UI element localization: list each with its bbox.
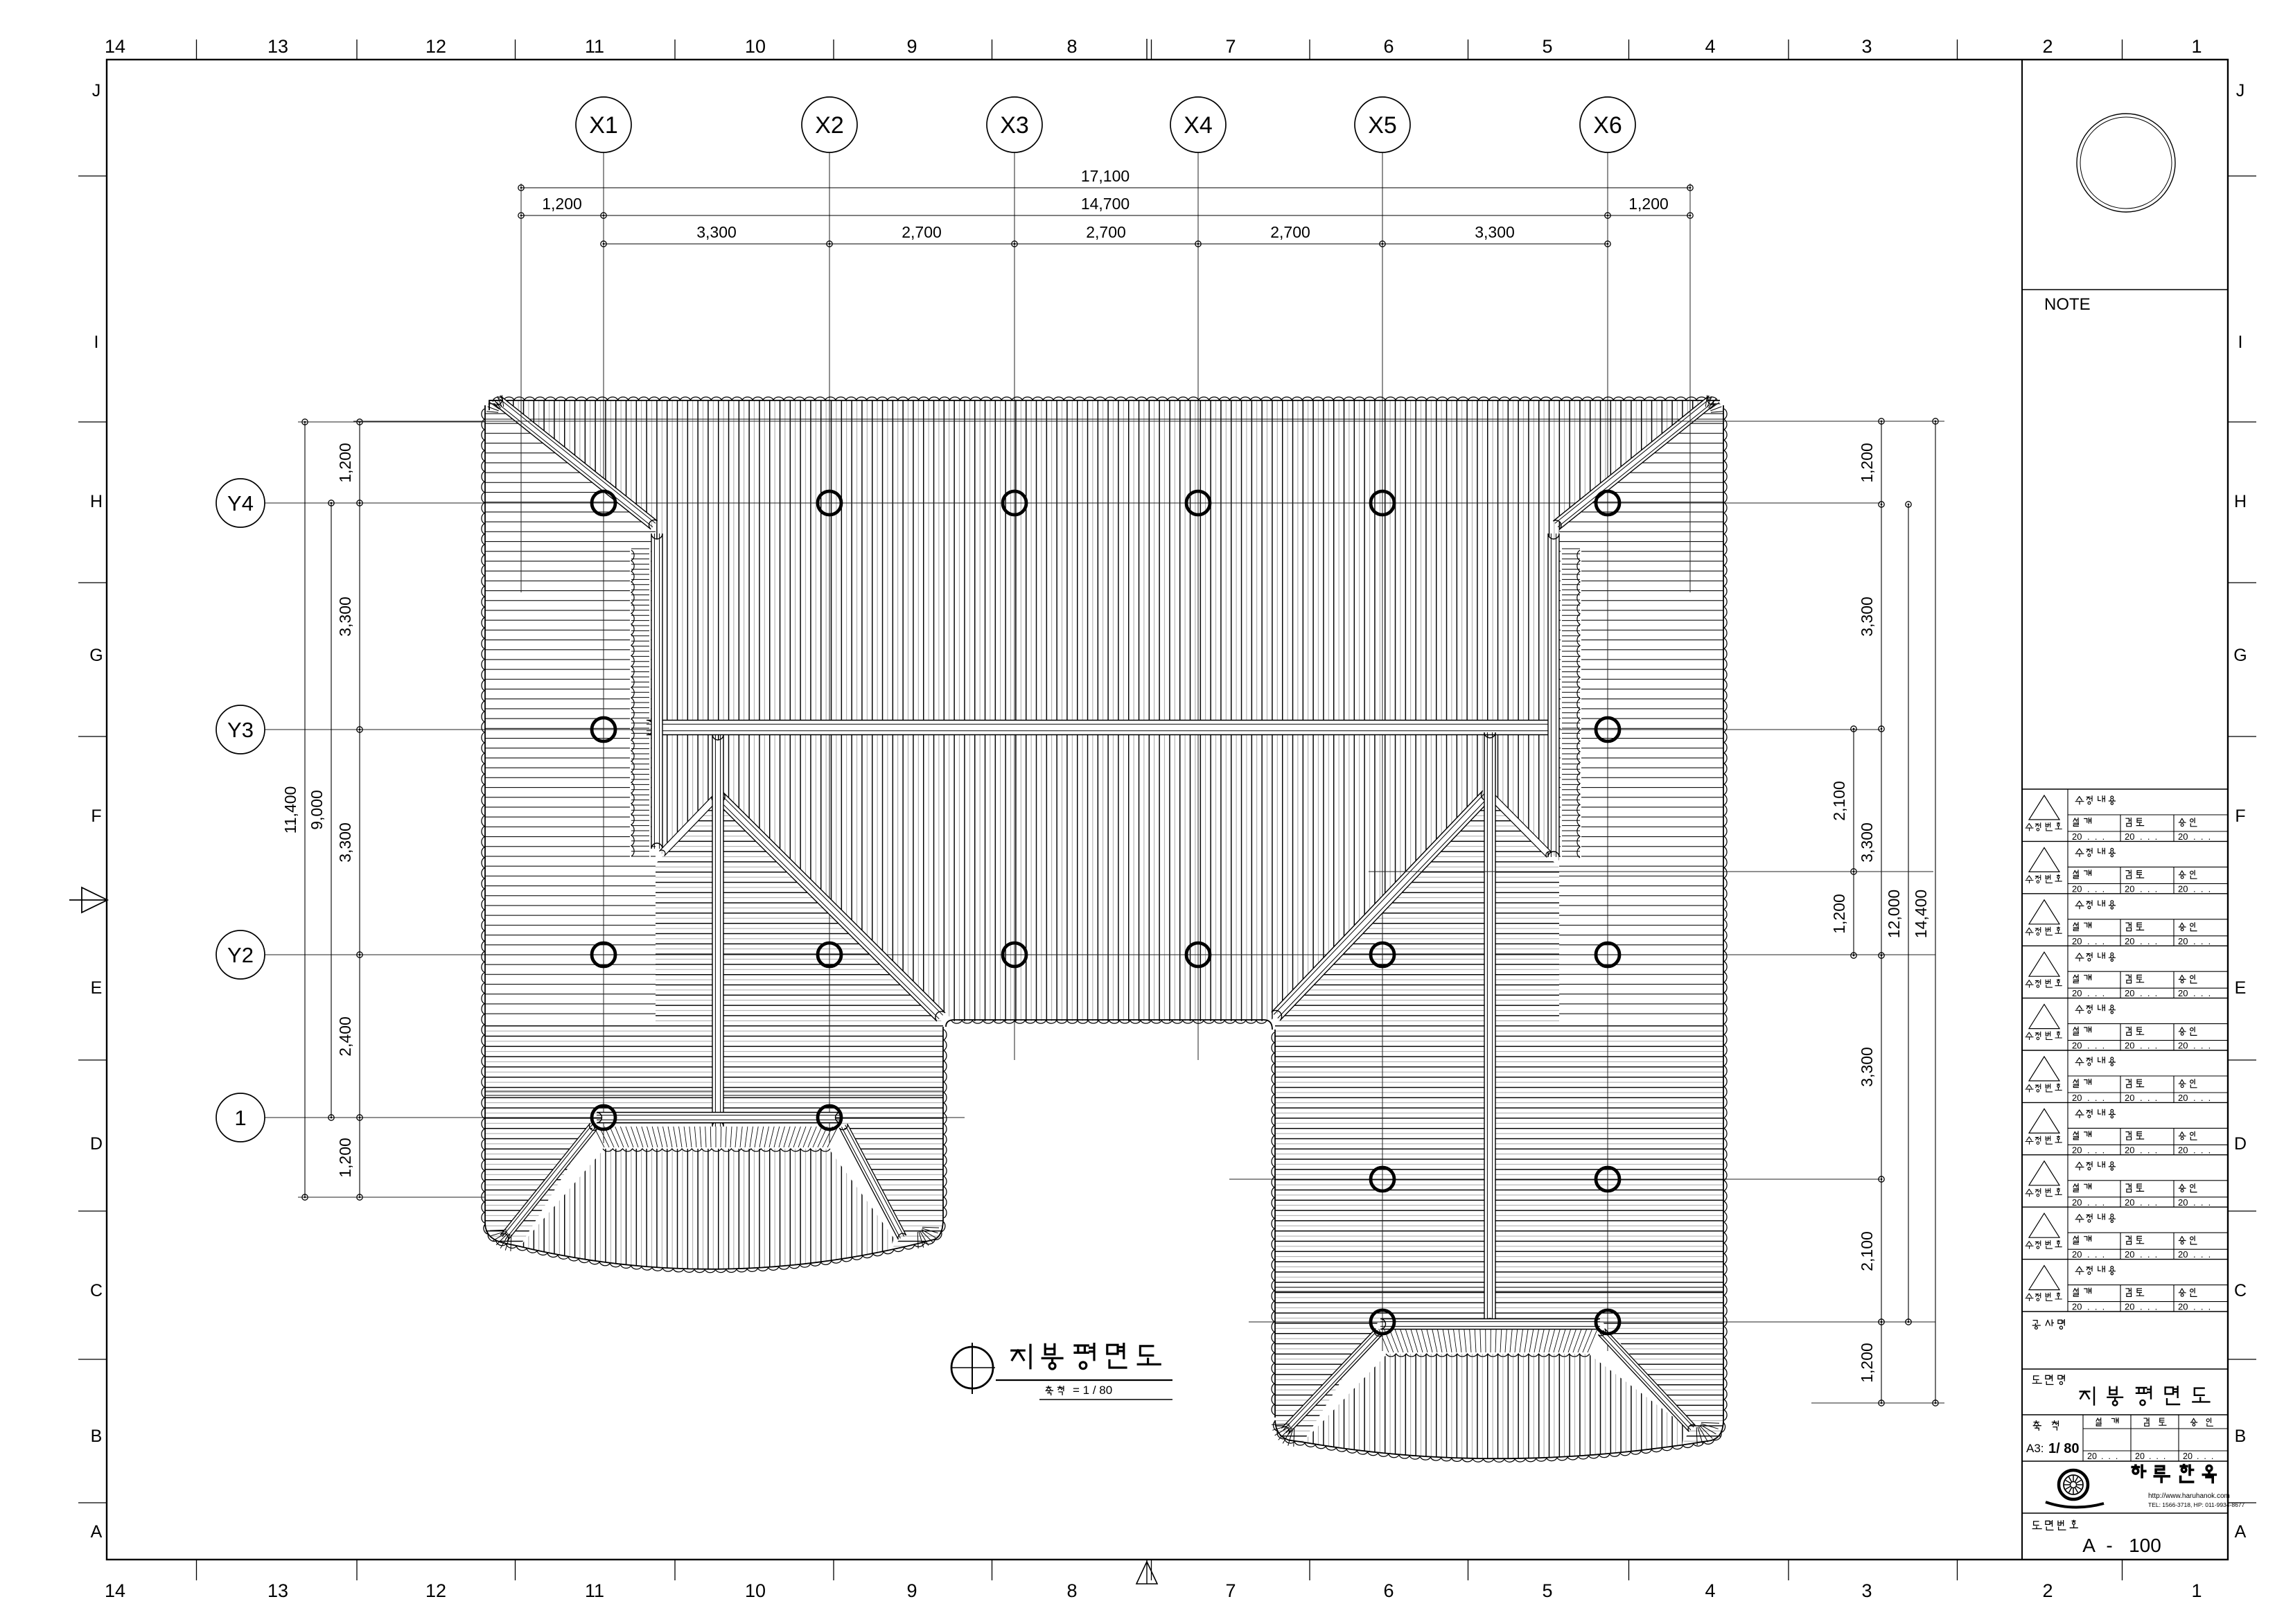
svg-text:. . .: . . . xyxy=(2087,883,2105,894)
svg-text:J: J xyxy=(92,81,101,100)
svg-text:2,100: 2,100 xyxy=(1858,1231,1876,1271)
svg-text:20: 20 xyxy=(2125,988,2134,998)
svg-text:1: 1 xyxy=(2191,1580,2202,1601)
svg-text:Y2: Y2 xyxy=(227,943,254,967)
svg-text:. . .: . . . xyxy=(2140,831,2157,842)
svg-text:20: 20 xyxy=(2072,988,2082,998)
svg-text:20: 20 xyxy=(2178,1145,2188,1155)
svg-text:20: 20 xyxy=(2178,1093,2188,1103)
svg-text:8: 8 xyxy=(1066,36,1077,57)
svg-text:2,700: 2,700 xyxy=(1086,223,1126,241)
svg-text:I: I xyxy=(94,333,99,352)
svg-text:10: 10 xyxy=(745,1580,766,1601)
svg-text:20: 20 xyxy=(2178,1249,2188,1260)
svg-text:3,300: 3,300 xyxy=(1475,223,1515,241)
svg-text:20: 20 xyxy=(2178,1041,2188,1051)
svg-text:3,300: 3,300 xyxy=(696,223,737,241)
svg-text:20: 20 xyxy=(2183,1451,2193,1461)
svg-text:20: 20 xyxy=(2135,1451,2145,1461)
svg-text:3,300: 3,300 xyxy=(1858,822,1876,863)
svg-text:. . .: . . . xyxy=(2140,1249,2157,1260)
svg-text:20: 20 xyxy=(2125,1041,2134,1051)
svg-text:. . .: . . . xyxy=(2140,1302,2157,1312)
svg-text:. . .: . . . xyxy=(2193,883,2211,894)
svg-text:. . .: . . . xyxy=(2193,831,2211,842)
svg-text:13: 13 xyxy=(267,1580,288,1601)
svg-text:. . .: . . . xyxy=(2193,1197,2211,1208)
svg-text:20: 20 xyxy=(2178,831,2188,842)
svg-text:11: 11 xyxy=(585,1580,604,1601)
svg-text:20: 20 xyxy=(2072,831,2082,842)
svg-text:. . .: . . . xyxy=(2140,1093,2157,1103)
svg-text:20: 20 xyxy=(2072,1249,2082,1260)
svg-text:2,700: 2,700 xyxy=(902,223,942,241)
svg-text:3: 3 xyxy=(1861,36,1872,57)
svg-text:X4: X4 xyxy=(1184,112,1213,139)
svg-text:12,000: 12,000 xyxy=(1885,890,1903,938)
svg-text:11,400: 11,400 xyxy=(281,786,299,834)
svg-text:4: 4 xyxy=(1705,36,1715,57)
svg-text:20: 20 xyxy=(2072,936,2082,946)
svg-text:1: 1 xyxy=(234,1106,246,1130)
svg-text:. . .: . . . xyxy=(2149,1451,2165,1461)
svg-text:X5: X5 xyxy=(1368,112,1397,139)
svg-text:5: 5 xyxy=(1542,36,1552,57)
svg-text:= 1 / 80: = 1 / 80 xyxy=(1073,1384,1112,1397)
svg-text:2: 2 xyxy=(2042,36,2053,57)
svg-text:20: 20 xyxy=(2125,1145,2134,1155)
svg-text:H: H xyxy=(2234,492,2247,511)
svg-text:3: 3 xyxy=(1861,1580,1872,1601)
svg-text:4: 4 xyxy=(1705,1580,1715,1601)
svg-text:. . .: . . . xyxy=(2087,1197,2105,1208)
svg-text:3,300: 3,300 xyxy=(1858,597,1876,637)
svg-text:20: 20 xyxy=(2072,1197,2082,1208)
svg-text:. . .: . . . xyxy=(2193,936,2211,946)
svg-text:9,000: 9,000 xyxy=(308,790,326,830)
svg-text:20: 20 xyxy=(2125,936,2134,946)
svg-text:6: 6 xyxy=(1383,36,1394,57)
svg-text:20: 20 xyxy=(2072,1041,2082,1051)
svg-text:2,700: 2,700 xyxy=(1270,223,1310,241)
svg-text:C: C xyxy=(90,1281,103,1300)
svg-text:. . .: . . . xyxy=(2140,988,2157,998)
svg-text:1,200: 1,200 xyxy=(336,443,354,483)
svg-text:. . .: . . . xyxy=(2197,1451,2213,1461)
svg-text:1: 1 xyxy=(2191,36,2202,57)
svg-text:G: G xyxy=(2233,646,2247,665)
svg-text:D: D xyxy=(90,1134,103,1154)
svg-text:F: F xyxy=(2235,806,2245,826)
svg-text:. . .: . . . xyxy=(2087,831,2105,842)
svg-text:. . .: . . . xyxy=(2193,1093,2211,1103)
svg-text:1/ 80: 1/ 80 xyxy=(2048,1441,2079,1456)
svg-text:14: 14 xyxy=(105,1580,125,1601)
svg-text:1,200: 1,200 xyxy=(336,1138,354,1178)
svg-text:14,700: 14,700 xyxy=(1081,195,1130,213)
svg-text:A: A xyxy=(91,1522,103,1542)
svg-text:. . .: . . . xyxy=(2087,988,2105,998)
svg-text:20: 20 xyxy=(2178,883,2188,894)
svg-text:. . .: . . . xyxy=(2087,1302,2105,1312)
svg-text:20: 20 xyxy=(2125,1249,2134,1260)
svg-text:F: F xyxy=(91,806,101,826)
svg-text:. . .: . . . xyxy=(2087,1145,2105,1155)
svg-text:14,400: 14,400 xyxy=(1912,890,1930,938)
svg-text:A3:: A3: xyxy=(2026,1442,2044,1455)
svg-text:20: 20 xyxy=(2125,1197,2134,1208)
svg-text:6: 6 xyxy=(1383,1580,1394,1601)
svg-text:B: B xyxy=(91,1427,103,1446)
svg-text:. . .: . . . xyxy=(2087,1093,2105,1103)
svg-text:1,200: 1,200 xyxy=(1858,443,1876,483)
svg-text:1,200: 1,200 xyxy=(1628,195,1669,213)
svg-text:. . .: . . . xyxy=(2193,1302,2211,1312)
svg-text:14: 14 xyxy=(105,36,125,57)
svg-text:12: 12 xyxy=(425,1580,446,1601)
svg-text:. . .: . . . xyxy=(2140,883,2157,894)
svg-text:8: 8 xyxy=(1066,1580,1077,1601)
svg-text:X2: X2 xyxy=(815,112,844,139)
svg-text:I: I xyxy=(2238,333,2243,352)
svg-text:NOTE: NOTE xyxy=(2044,295,2091,314)
svg-text:3,300: 3,300 xyxy=(336,822,354,863)
svg-text:1,200: 1,200 xyxy=(1830,894,1848,934)
svg-text:2: 2 xyxy=(2042,1580,2053,1601)
svg-text:D: D xyxy=(2234,1134,2247,1154)
svg-text:H: H xyxy=(90,492,103,511)
svg-text:20: 20 xyxy=(2072,1302,2082,1312)
svg-text:10: 10 xyxy=(745,36,766,57)
svg-text:. . .: . . . xyxy=(2101,1451,2118,1461)
svg-text:. . .: . . . xyxy=(2140,936,2157,946)
svg-text:20: 20 xyxy=(2178,1302,2188,1312)
svg-text:20: 20 xyxy=(2072,1145,2082,1155)
svg-text:. . .: . . . xyxy=(2193,1041,2211,1051)
svg-text:20: 20 xyxy=(2125,831,2134,842)
svg-text:. . .: . . . xyxy=(2193,1249,2211,1260)
svg-text:C: C xyxy=(2234,1281,2247,1300)
svg-text:X3: X3 xyxy=(1000,112,1029,139)
svg-text:E: E xyxy=(2235,978,2247,998)
svg-text:. . .: . . . xyxy=(2193,1145,2211,1155)
svg-text:3,300: 3,300 xyxy=(336,597,354,637)
svg-text:7: 7 xyxy=(1225,36,1236,57)
svg-text:12: 12 xyxy=(425,36,446,57)
svg-text:1,200: 1,200 xyxy=(542,195,582,213)
svg-text:. . .: . . . xyxy=(2140,1197,2157,1208)
svg-text:Y3: Y3 xyxy=(227,718,254,742)
svg-text:X6: X6 xyxy=(1593,112,1622,139)
svg-text:7: 7 xyxy=(1225,1580,1236,1601)
svg-text:. . .: . . . xyxy=(2087,936,2105,946)
svg-text:E: E xyxy=(91,978,103,998)
svg-text:13: 13 xyxy=(267,36,288,57)
svg-text:2,100: 2,100 xyxy=(1830,781,1848,821)
svg-text:A: A xyxy=(2235,1522,2247,1542)
svg-text:G: G xyxy=(89,646,103,665)
svg-text:20: 20 xyxy=(2125,1093,2134,1103)
svg-text:11: 11 xyxy=(585,36,604,57)
svg-text:20: 20 xyxy=(2125,1302,2134,1312)
svg-text:. . .: . . . xyxy=(2087,1249,2105,1260)
svg-text:3,300: 3,300 xyxy=(1858,1047,1876,1087)
svg-text:A - 100: A - 100 xyxy=(2082,1535,2161,1556)
svg-text:Y4: Y4 xyxy=(227,491,254,515)
svg-text:20: 20 xyxy=(2072,1093,2082,1103)
svg-text:2,400: 2,400 xyxy=(336,1016,354,1057)
svg-text:20: 20 xyxy=(2178,1197,2188,1208)
svg-text:TEL: 1566-3718, HP: 011-9934-8: TEL: 1566-3718, HP: 011-9934-8677 xyxy=(2148,1501,2245,1508)
svg-text:5: 5 xyxy=(1542,1580,1552,1601)
svg-text:20: 20 xyxy=(2178,936,2188,946)
svg-text:X1: X1 xyxy=(589,112,618,139)
svg-text:. . .: . . . xyxy=(2087,1041,2105,1051)
svg-text:B: B xyxy=(2235,1427,2247,1446)
svg-text:9: 9 xyxy=(906,1580,917,1601)
svg-text:9: 9 xyxy=(906,36,917,57)
svg-text:17,100: 17,100 xyxy=(1081,167,1130,185)
svg-text:J: J xyxy=(2236,81,2245,100)
svg-text:. . .: . . . xyxy=(2140,1041,2157,1051)
svg-text:. . .: . . . xyxy=(2193,988,2211,998)
svg-text:1,200: 1,200 xyxy=(1858,1343,1876,1383)
svg-text:20: 20 xyxy=(2125,883,2134,894)
svg-text:. . .: . . . xyxy=(2140,1145,2157,1155)
svg-text:20: 20 xyxy=(2087,1451,2097,1461)
svg-text:http://www.haruhanok.com: http://www.haruhanok.com xyxy=(2148,1492,2230,1500)
svg-text:20: 20 xyxy=(2072,883,2082,894)
svg-text:20: 20 xyxy=(2178,988,2188,998)
